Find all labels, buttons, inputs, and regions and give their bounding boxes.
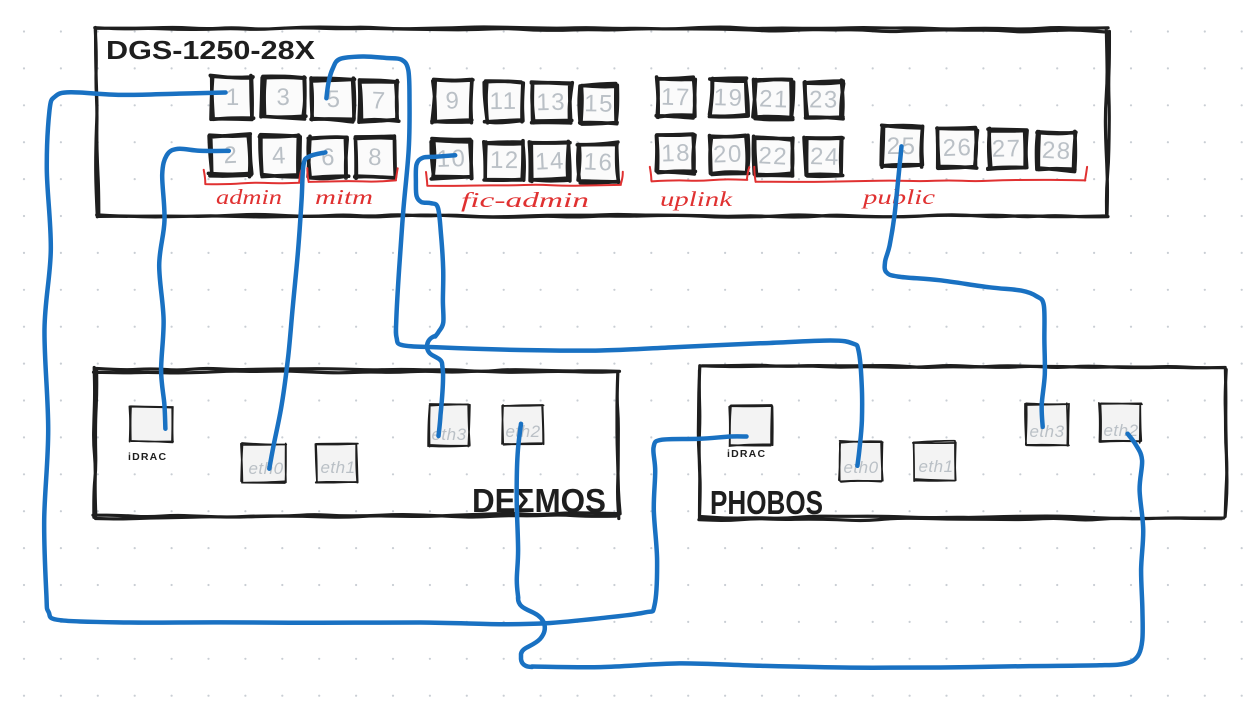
svg-text:eth0: eth0 bbox=[843, 458, 878, 477]
svg-text:eth3: eth3 bbox=[1029, 422, 1064, 441]
svg-text:admin: admin bbox=[216, 185, 282, 209]
svg-text:27: 27 bbox=[992, 135, 1022, 163]
svg-text:uplink: uplink bbox=[660, 187, 733, 211]
svg-text:21: 21 bbox=[759, 85, 790, 113]
svg-text:1: 1 bbox=[226, 84, 239, 111]
svg-text:18: 18 bbox=[661, 140, 692, 168]
svg-text:iDRAC: iDRAC bbox=[128, 451, 167, 463]
svg-text:22: 22 bbox=[758, 142, 789, 170]
svg-text:PHOBOS: PHOBOS bbox=[710, 484, 823, 521]
svg-text:10: 10 bbox=[436, 145, 467, 173]
svg-text:23: 23 bbox=[809, 86, 839, 113]
svg-text:15: 15 bbox=[584, 90, 614, 117]
svg-text:eth0: eth0 bbox=[248, 459, 283, 478]
svg-text:6: 6 bbox=[321, 144, 335, 171]
svg-text:12: 12 bbox=[490, 147, 520, 174]
svg-text:17: 17 bbox=[661, 84, 691, 112]
svg-text:eth2: eth2 bbox=[1103, 421, 1138, 440]
svg-text:eth1: eth1 bbox=[918, 457, 953, 476]
svg-text:fic-admin: fic-admin bbox=[461, 188, 589, 212]
svg-text:14: 14 bbox=[535, 147, 566, 175]
svg-text:2: 2 bbox=[223, 142, 238, 170]
svg-text:20: 20 bbox=[713, 140, 744, 168]
svg-text:iDRAC: iDRAC bbox=[727, 448, 766, 460]
svg-text:26: 26 bbox=[942, 134, 973, 162]
svg-text:DGS-1250-28X: DGS-1250-28X bbox=[106, 35, 316, 65]
svg-text:8: 8 bbox=[368, 144, 382, 171]
svg-text:3: 3 bbox=[276, 84, 290, 111]
svg-text:19: 19 bbox=[713, 84, 743, 112]
svg-text:11: 11 bbox=[489, 88, 517, 115]
svg-text:24: 24 bbox=[810, 143, 840, 171]
svg-text:7: 7 bbox=[371, 87, 386, 115]
svg-text:DEΣMOS: DEΣMOS bbox=[472, 482, 606, 519]
svg-text:16: 16 bbox=[583, 148, 614, 176]
svg-text:eth1: eth1 bbox=[320, 458, 355, 477]
svg-text:13: 13 bbox=[536, 89, 566, 117]
svg-text:28: 28 bbox=[1041, 137, 1072, 165]
svg-text:4: 4 bbox=[272, 142, 286, 170]
svg-text:mitm: mitm bbox=[315, 185, 373, 209]
svg-text:9: 9 bbox=[445, 87, 459, 115]
